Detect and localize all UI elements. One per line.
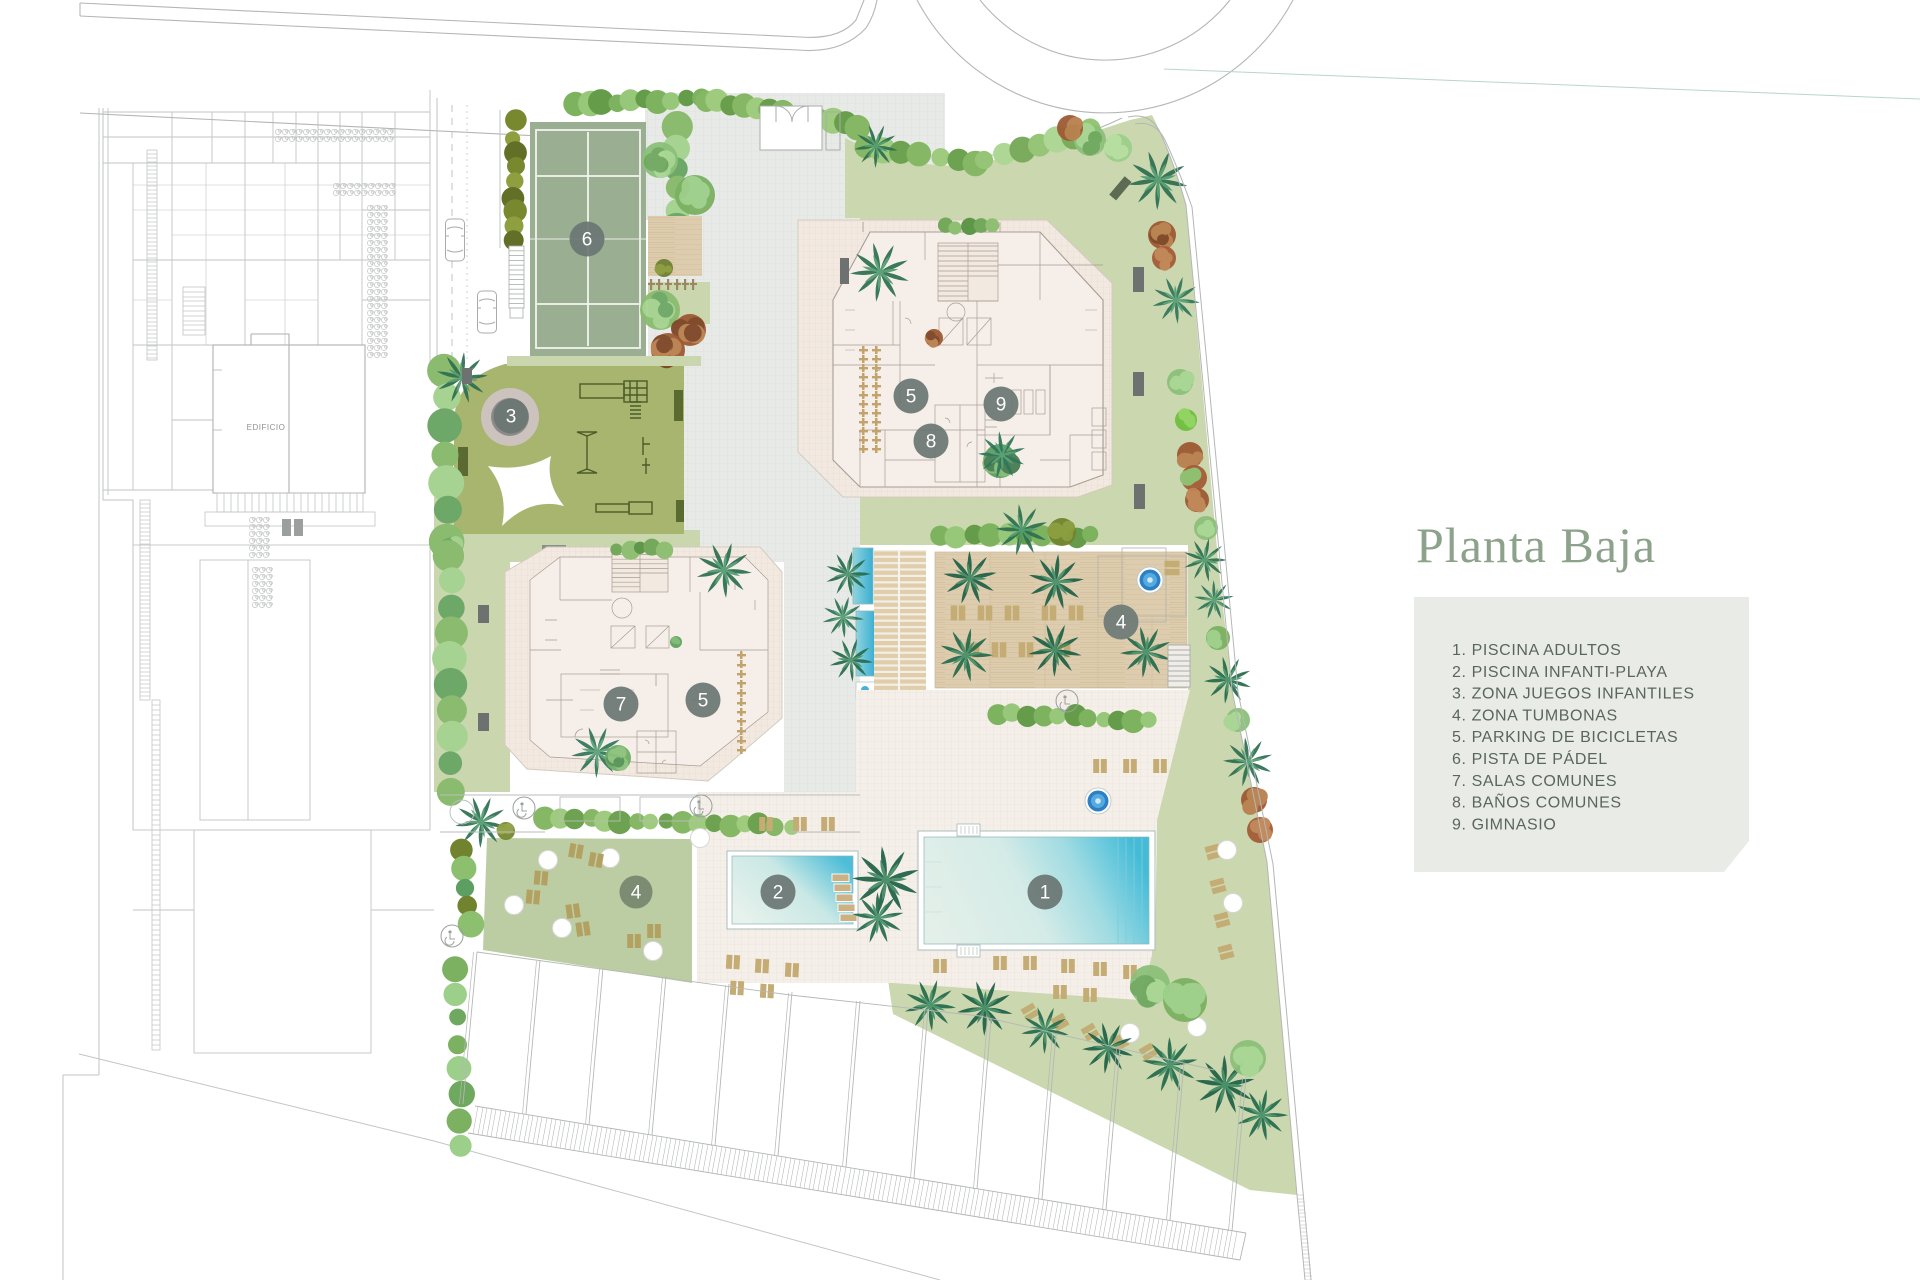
svg-text:1: 1 <box>1040 883 1051 904</box>
svg-text:6: 6 <box>582 230 593 251</box>
svg-text:EDIFICIO: EDIFICIO <box>247 423 286 432</box>
svg-text:4. ZONA TUMBONAS: 4. ZONA TUMBONAS <box>1452 707 1618 724</box>
svg-text:4: 4 <box>631 883 642 904</box>
svg-text:3: 3 <box>506 407 517 428</box>
svg-text:9: 9 <box>996 395 1007 416</box>
svg-text:4: 4 <box>1116 613 1127 634</box>
svg-text:9. GIMNASIO: 9. GIMNASIO <box>1452 816 1556 833</box>
svg-text:2: 2 <box>773 883 784 904</box>
svg-text:Planta Baja: Planta Baja <box>1416 517 1656 573</box>
svg-text:5. PARKING DE BICICLETAS: 5. PARKING DE BICICLETAS <box>1452 729 1678 746</box>
svg-text:2. PISCINA INFANTI-PLAYA: 2. PISCINA INFANTI-PLAYA <box>1452 664 1668 681</box>
svg-text:8: 8 <box>926 432 937 453</box>
svg-text:7: 7 <box>616 695 627 716</box>
svg-text:8. BAÑOS COMUNES: 8. BAÑOS COMUNES <box>1452 792 1622 812</box>
svg-text:7. SALAS COMUNES: 7. SALAS COMUNES <box>1452 773 1617 790</box>
svg-text:5: 5 <box>698 691 709 712</box>
svg-text:5: 5 <box>906 387 917 408</box>
svg-text:3. ZONA JUEGOS INFANTILES: 3. ZONA JUEGOS INFANTILES <box>1452 686 1695 703</box>
svg-text:1. PISCINA ADULTOS: 1. PISCINA ADULTOS <box>1452 642 1621 659</box>
svg-text:6. PISTA DE PÁDEL: 6. PISTA DE PÁDEL <box>1452 749 1608 768</box>
